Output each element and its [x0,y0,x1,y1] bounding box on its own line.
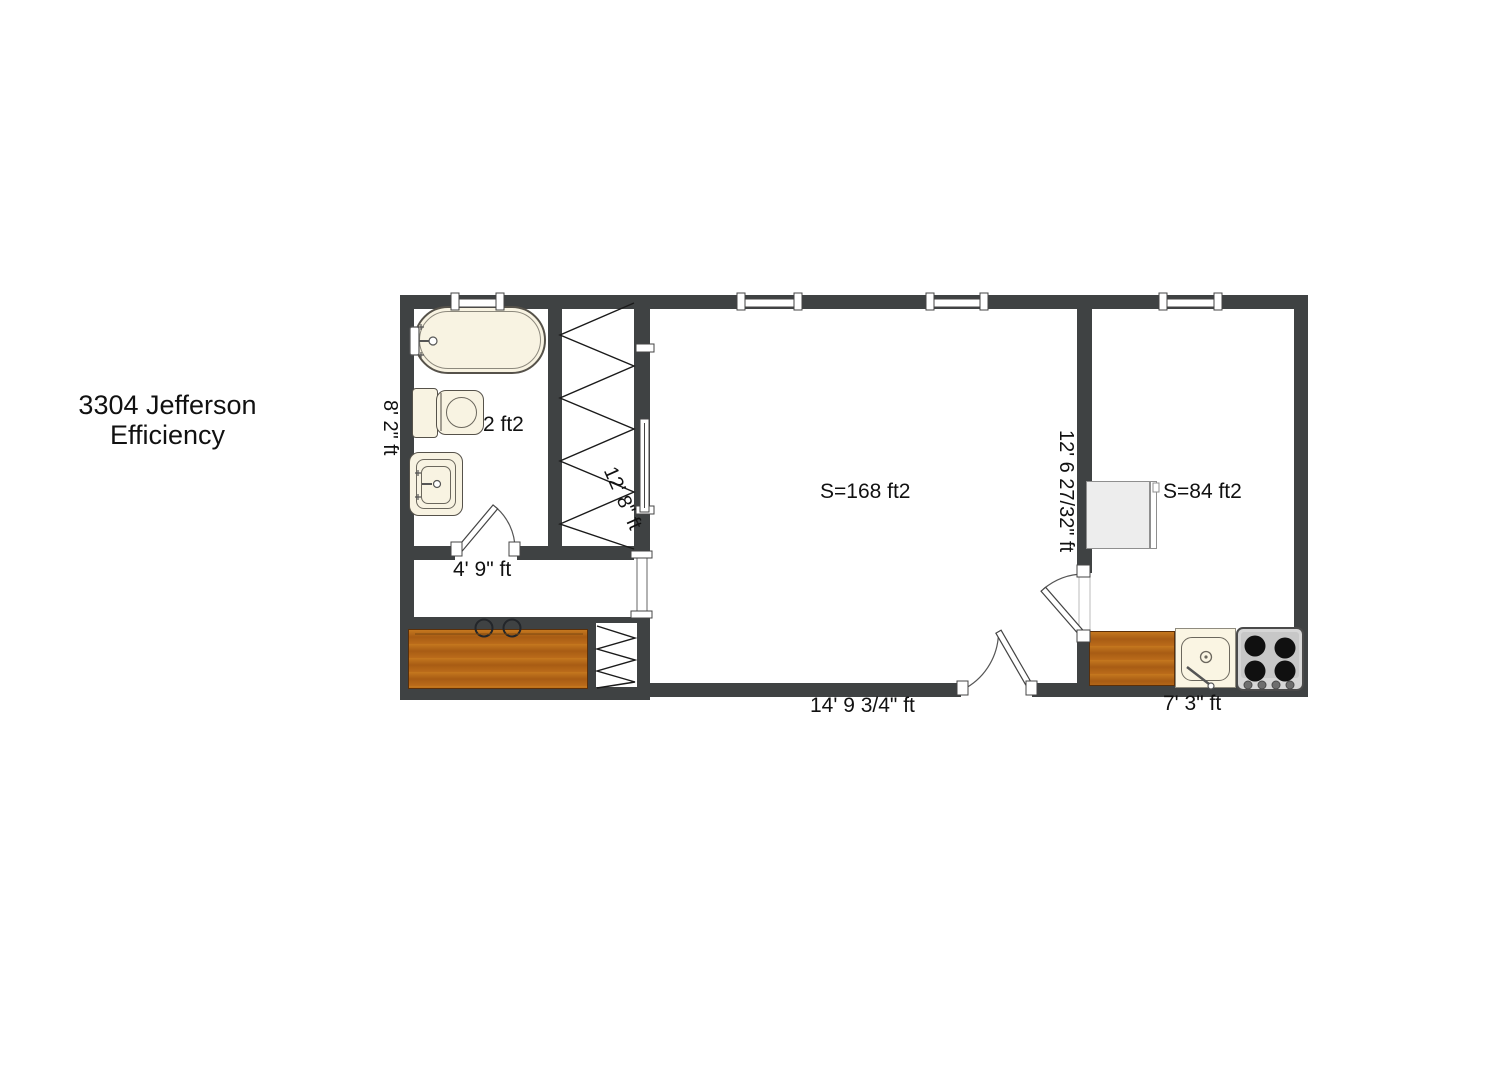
toilet-tank [412,388,438,438]
kitchen-sink-basin [1181,637,1230,681]
stove-burner-panel [1241,632,1299,678]
kitchen-area-label: S=84 ft2 [1163,480,1242,504]
hallway-width-dim: 4' 9" ft [453,558,511,582]
refrigerator-door [1150,481,1157,549]
bathroom-height-dim: 8' 2" ft [378,400,401,502]
refrigerator [1086,481,1150,549]
entry-door-opening [961,683,1032,697]
kitchen-counter [1089,631,1175,686]
wall-bathroom-bottom [400,546,650,560]
toilet-seat [446,397,477,428]
floor-plan: 3304 Jefferson Efficiency 2 ft2 8' 2" ft… [0,0,1512,1080]
small-closet [596,623,637,687]
kitchen-width-dim: 7' 3" ft [1163,692,1221,716]
plan-title-line2: Efficiency [60,420,275,450]
wall-closet-left [548,309,562,546]
counter-left [408,629,588,689]
plan-linework [0,0,1512,1080]
main-room-area-label: S=168 ft2 [820,480,911,504]
kitchen-door [1041,565,1090,642]
bathtub-inner [419,311,541,369]
hall-passage-opening [634,551,650,617]
bathroom-area-label: 2 ft2 [483,413,524,437]
main-room-width-dim: 14' 9 3/4" ft [810,694,915,718]
plan-title: 3304 Jefferson Efficiency [60,390,275,450]
wall-top [400,295,1308,309]
plan-title-line1: 3304 Jefferson [60,390,275,420]
kitchen-height-dim: 12' 6 27/32" ft [1054,430,1077,556]
bathroom-sink-basin [421,466,451,504]
